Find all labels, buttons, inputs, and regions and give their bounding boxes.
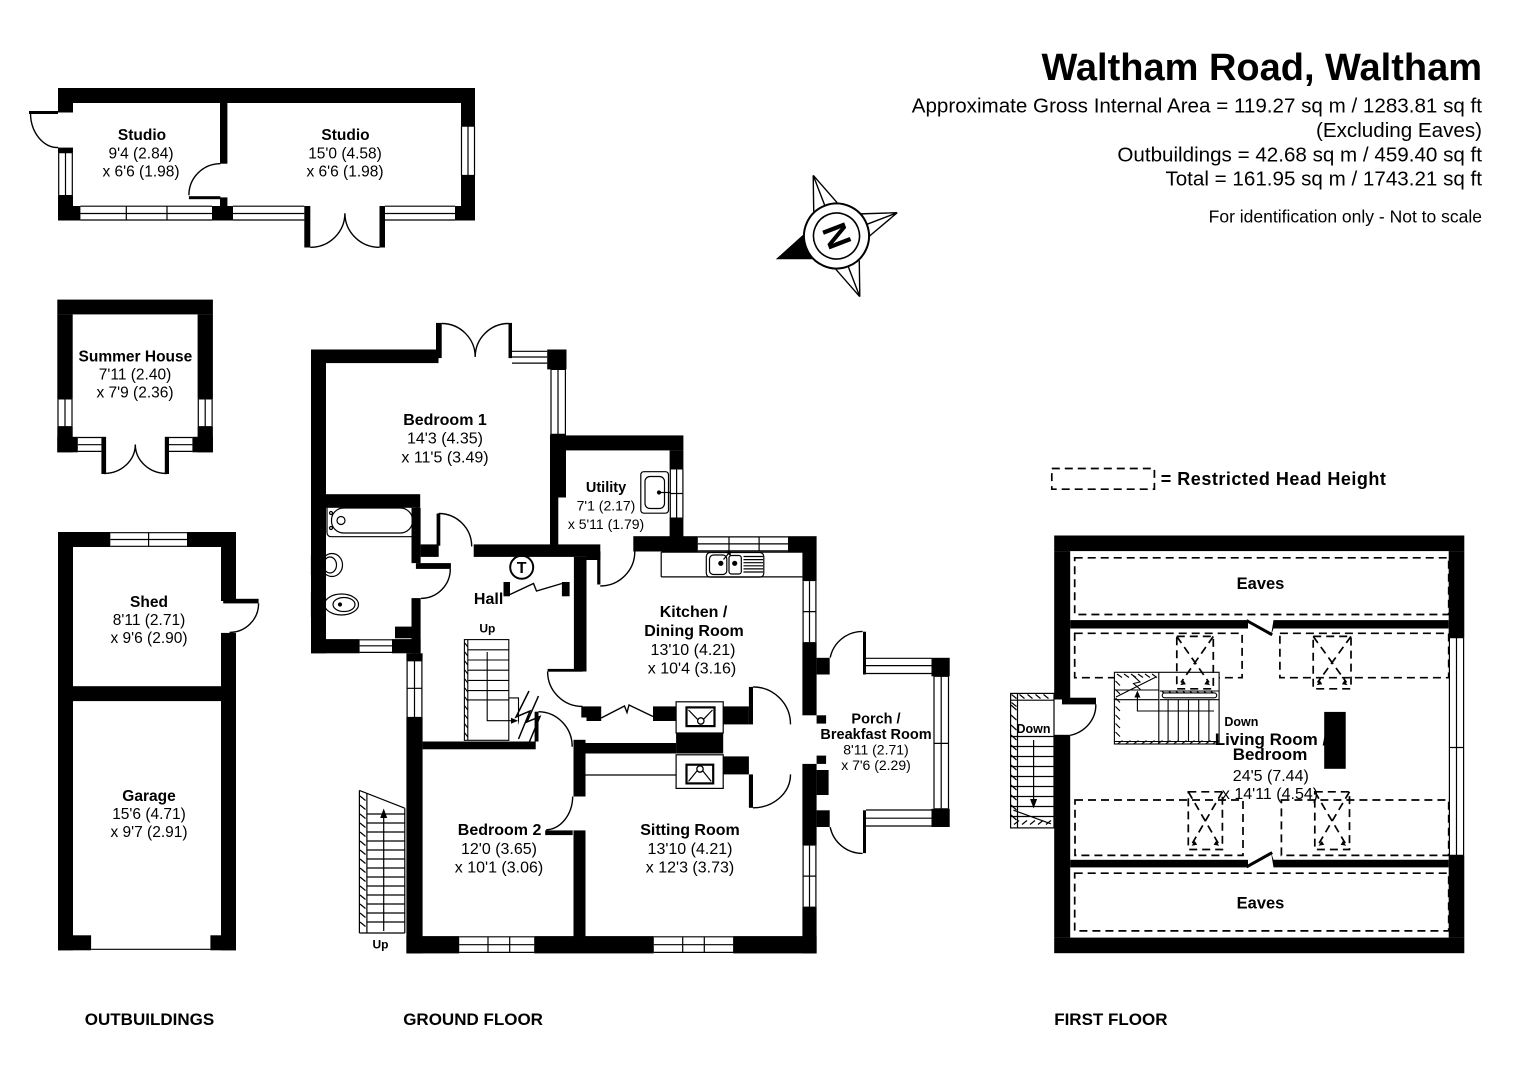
svg-text:8'11 (2.71): 8'11 (2.71) [113,612,185,629]
svg-text:Total = 161.95 sq m / 1743.21: Total = 161.95 sq m / 1743.21 sq ft [1165,168,1482,191]
svg-text:Sitting Room: Sitting Room [640,822,740,839]
svg-text:Outbuildings = 42.68 sq m / 45: Outbuildings = 42.68 sq m / 459.40 sq ft [1117,144,1482,167]
svg-text:x 9'6 (2.90): x 9'6 (2.90) [110,630,187,647]
svg-text:7'1 (2.17): 7'1 (2.17) [577,498,636,514]
svg-text:FIRST FLOOR: FIRST FLOOR [1054,1010,1167,1029]
svg-text:x 5'11 (1.79): x 5'11 (1.79) [568,516,644,532]
svg-text:12'0 (3.65): 12'0 (3.65) [461,841,537,858]
svg-text:7'11 (2.40): 7'11 (2.40) [99,367,171,384]
svg-text:Summer House: Summer House [79,349,193,366]
svg-text:13'10 (4.21): 13'10 (4.21) [648,841,733,858]
svg-text:Porch /: Porch / [851,712,900,728]
svg-text:x 14'11 (4.54): x 14'11 (4.54) [1222,786,1318,803]
svg-text:Studio: Studio [321,127,369,144]
svg-text:8'11 (2.71): 8'11 (2.71) [843,742,908,758]
svg-text:Dining Room: Dining Room [644,623,744,640]
svg-text:x 10'1 (3.06): x 10'1 (3.06) [455,860,543,877]
svg-text:Hall: Hall [474,591,503,608]
svg-text:Bedroom 1: Bedroom 1 [403,412,487,429]
svg-text:T: T [517,560,527,577]
svg-text:GROUND FLOOR: GROUND FLOOR [403,1010,543,1029]
svg-text:For identification only - Not: For identification only - Not to scale [1209,207,1482,227]
svg-text:x 7'6 (2.29): x 7'6 (2.29) [841,757,911,773]
svg-text:x 9'7 (2.91): x 9'7 (2.91) [110,824,187,841]
svg-text:13'10 (4.21): 13'10 (4.21) [651,642,736,659]
svg-text:x 6'6 (1.98): x 6'6 (1.98) [306,164,383,181]
svg-text:Kitchen /: Kitchen / [660,604,728,621]
svg-text:15'6 (4.71): 15'6 (4.71) [112,806,186,823]
svg-text:Utility: Utility [586,480,626,496]
svg-text:15'0 (4.58): 15'0 (4.58) [308,146,382,163]
svg-text:x 6'6 (1.98): x 6'6 (1.98) [102,164,179,181]
svg-text:Garage: Garage [122,788,176,805]
svg-text:24'5 (7.44): 24'5 (7.44) [1233,768,1309,785]
svg-text:(Excluding Eaves): (Excluding Eaves) [1316,119,1482,142]
svg-text:= Restricted Head Height: = Restricted Head Height [1161,469,1387,489]
svg-text:x 10'4 (3.16): x 10'4 (3.16) [648,661,736,678]
svg-text:x 7'9 (2.36): x 7'9 (2.36) [96,385,173,402]
svg-text:Eaves: Eaves [1237,895,1285,913]
svg-text:Shed: Shed [130,594,168,611]
svg-text:14'3 (4.35): 14'3 (4.35) [407,431,483,448]
svg-text:Studio: Studio [118,127,166,144]
svg-text:x 11'5 (3.49): x 11'5 (3.49) [401,450,488,467]
svg-text:Eaves: Eaves [1237,575,1285,593]
svg-text:x 12'3 (3.73): x 12'3 (3.73) [646,860,734,877]
svg-text:Down: Down [1224,715,1258,729]
svg-text:9'4 (2.84): 9'4 (2.84) [109,146,174,163]
svg-text:Bedroom: Bedroom [1233,745,1308,764]
svg-text:Down: Down [1016,722,1050,736]
svg-text:Up: Up [479,622,495,636]
svg-text:Waltham Road, Waltham: Waltham Road, Waltham [1041,47,1482,89]
svg-text:OUTBUILDINGS: OUTBUILDINGS [85,1010,214,1029]
svg-text:Up: Up [373,938,389,952]
svg-text:Bedroom 2: Bedroom 2 [458,822,542,839]
svg-text:Approximate Gross Internal Are: Approximate Gross Internal Area = 119.27… [912,95,1483,118]
